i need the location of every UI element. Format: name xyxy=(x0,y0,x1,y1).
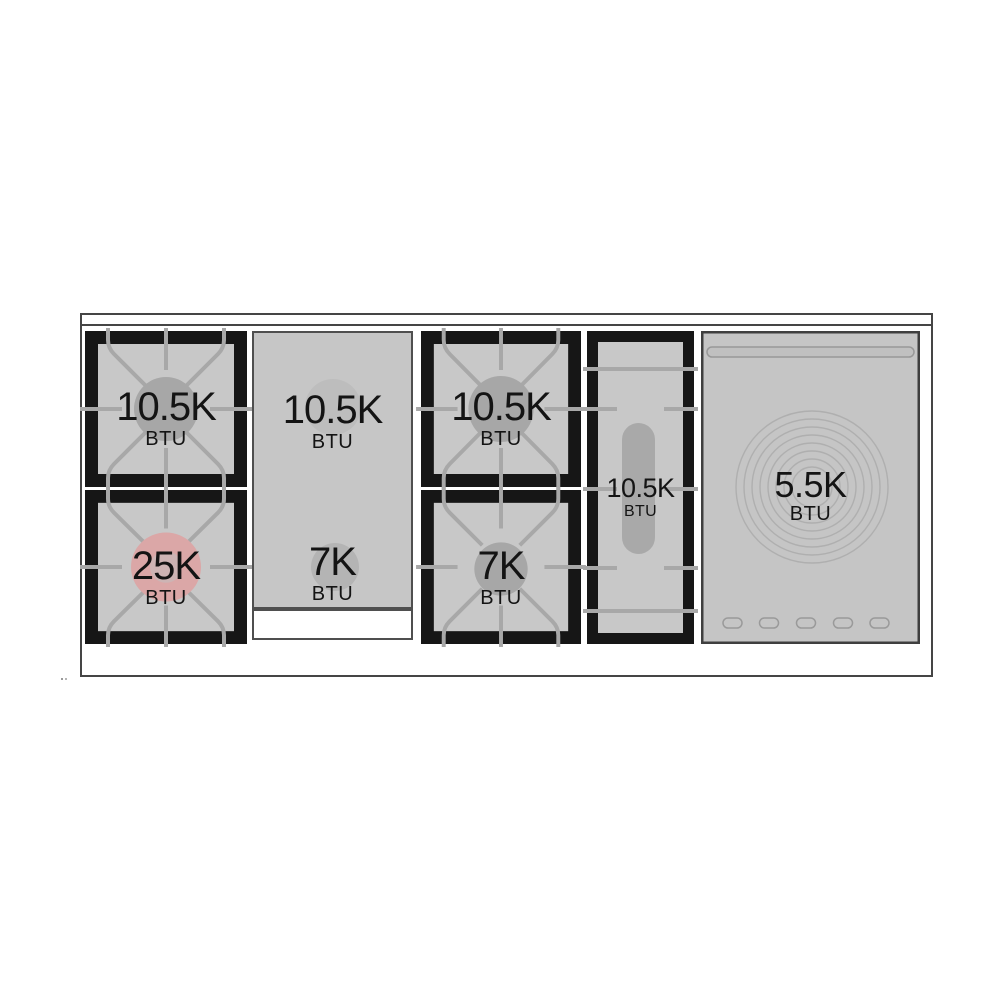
back-trim xyxy=(82,315,931,326)
burner-center-bottom: 7K BTU xyxy=(421,490,581,644)
griddle-rating-top: 10.5K BTU xyxy=(254,388,411,452)
oval-burner: 10.5K BTU xyxy=(587,331,694,644)
burner-btu-value: 10.5K xyxy=(254,388,411,432)
griddle-rating-bottom: 7K BTU xyxy=(254,540,411,604)
burner-rating: 7K BTU xyxy=(421,544,581,608)
burner-btu-value: 10.5K xyxy=(85,385,247,429)
btu-unit-label: BTU xyxy=(421,429,581,449)
griddle-front-trim xyxy=(252,609,413,640)
btu-unit-label: BTU xyxy=(254,584,411,604)
burner-rating: 10.5K BTU xyxy=(421,385,581,449)
btu-unit-label: BTU xyxy=(254,432,411,452)
btu-unit-label: BTU xyxy=(85,588,247,608)
burner-btu-value: 5.5K xyxy=(701,465,920,505)
burner-btu-value: 10.5K xyxy=(587,473,694,503)
btu-unit-label: BTU xyxy=(85,429,247,449)
rangetop-diagram: 10.5K BTU xyxy=(0,0,1000,1000)
btu-unit-label: BTU xyxy=(701,503,920,525)
burner-center-top: 10.5K BTU xyxy=(421,331,581,487)
burner-btu-value: 10.5K xyxy=(421,385,581,429)
burner-left-bottom: 25K BTU xyxy=(85,490,247,644)
plate-rating: 5.5K BTU xyxy=(701,465,920,525)
rangetop-surface: 10.5K BTU xyxy=(80,313,933,677)
burner-rating: 25K BTU xyxy=(85,544,247,608)
btu-unit-label: BTU xyxy=(421,588,581,608)
griddle-zone: 10.5K BTU 7K BTU xyxy=(252,331,413,609)
plate-handle-slot xyxy=(707,347,914,357)
stray-mark xyxy=(61,678,63,680)
french-plate: 5.5K BTU xyxy=(701,331,920,644)
btu-unit-label: BTU xyxy=(587,503,694,521)
burner-btu-value: 7K xyxy=(254,540,411,584)
oval-burner-rating: 10.5K BTU xyxy=(587,473,694,521)
burner-left-top: 10.5K BTU xyxy=(85,331,247,487)
burner-rating: 10.5K BTU xyxy=(85,385,247,449)
burner-btu-value: 25K xyxy=(85,544,247,588)
burner-btu-value: 7K xyxy=(421,544,581,588)
